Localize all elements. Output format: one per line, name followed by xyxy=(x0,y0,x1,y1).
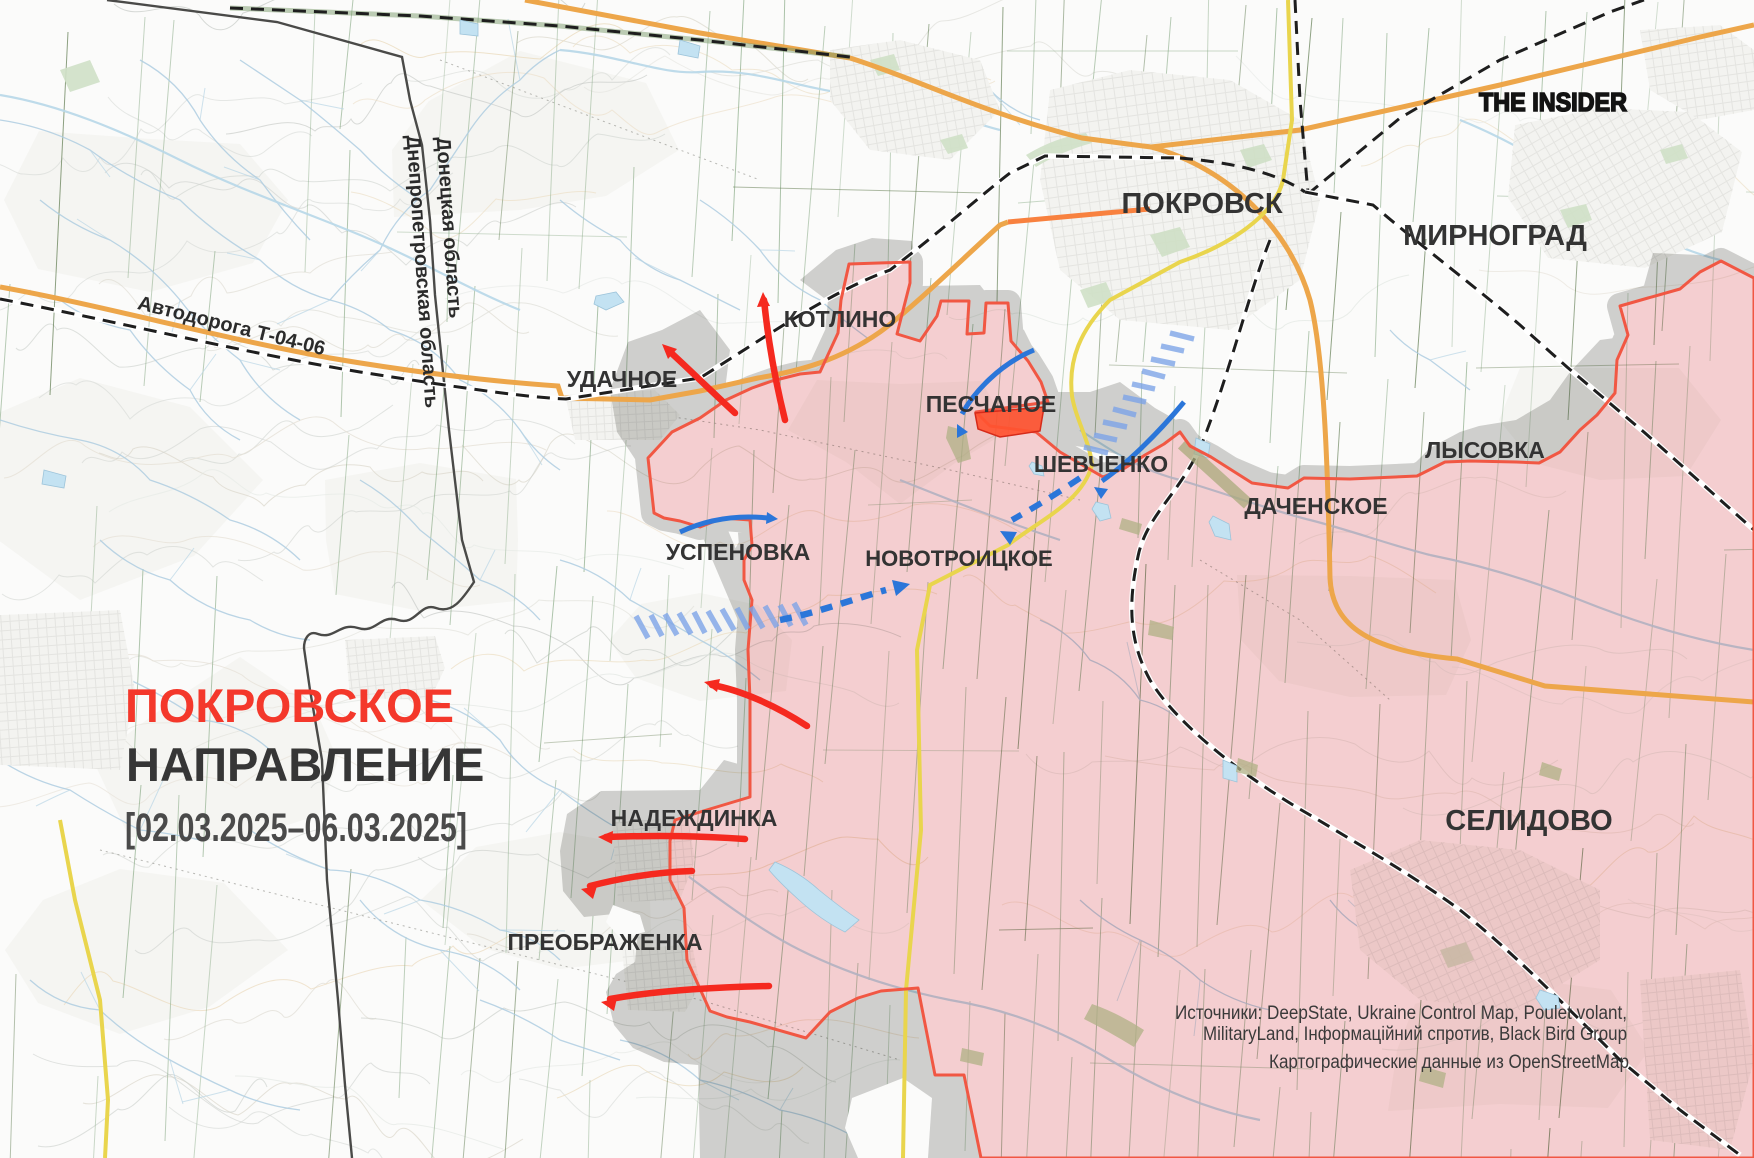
svg-text:КОТЛИНО: КОТЛИНО xyxy=(784,306,897,332)
svg-text:[02.03.2025–06.03.2025]: [02.03.2025–06.03.2025] xyxy=(125,806,467,850)
svg-text:ПОКРОВСК: ПОКРОВСК xyxy=(1121,188,1282,220)
svg-text:НОВОТРОИЦКОЕ: НОВОТРОИЦКОЕ xyxy=(865,546,1052,571)
svg-text:Картографические данные из Ope: Картографические данные из OpenStreetMap xyxy=(1269,1052,1629,1073)
svg-text:УСПЕНОВКА: УСПЕНОВКА xyxy=(666,539,811,565)
svg-text:ШЕВЧЕНКО: ШЕВЧЕНКО xyxy=(1034,451,1168,477)
svg-text:ПЕСЧАНОЕ: ПЕСЧАНОЕ xyxy=(926,391,1057,417)
svg-text:УДАЧНОЕ: УДАЧНОЕ xyxy=(567,366,677,392)
svg-text:ПРЕОБРАЖЕНКА: ПРЕОБРАЖЕНКА xyxy=(508,929,703,955)
svg-text:МИРНОГРАД: МИРНОГРАД xyxy=(1403,220,1587,252)
svg-text:ПОКРОВСКОЕ: ПОКРОВСКОЕ xyxy=(125,679,454,732)
svg-text:MilitaryLand, Інформаційний сп: MilitaryLand, Інформаційний спротив, Bla… xyxy=(1203,1024,1627,1045)
svg-text:СЕЛИДОВО: СЕЛИДОВО xyxy=(1445,805,1612,837)
svg-text:Источники: DeepState, Ukraine: Источники: DeepState, Ukraine Control Ma… xyxy=(1175,1003,1627,1024)
svg-text:НАДЕЖДИНКА: НАДЕЖДИНКА xyxy=(611,805,778,831)
svg-text:THE INSIDER: THE INSIDER xyxy=(1479,87,1627,117)
svg-text:ЛЫСОВКА: ЛЫСОВКА xyxy=(1425,437,1545,463)
svg-text:НАПРАВЛЕНИЕ: НАПРАВЛЕНИЕ xyxy=(126,738,484,791)
svg-text:ДАЧЕНСКОЕ: ДАЧЕНСКОЕ xyxy=(1244,493,1387,519)
